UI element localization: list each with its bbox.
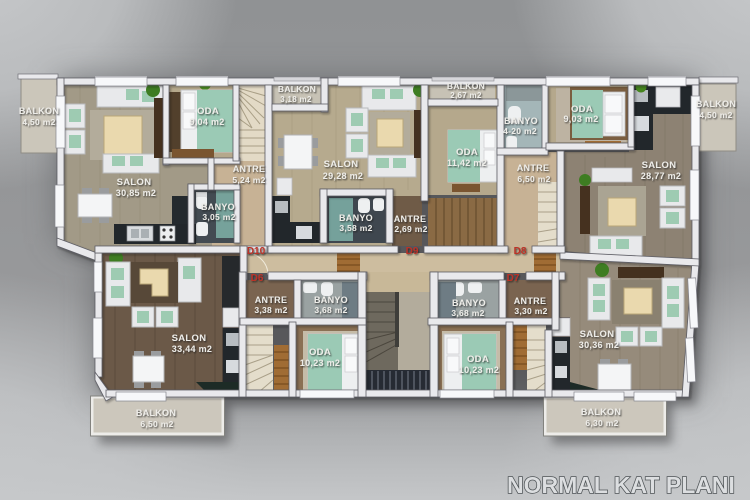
svg-text:ODA: ODA: [309, 347, 331, 358]
svg-text:9,04 m2: 9,04 m2: [189, 117, 224, 127]
svg-text:ANTRE: ANTRE: [255, 295, 288, 305]
svg-text:29,28 m2: 29,28 m2: [323, 171, 363, 181]
svg-text:4-20 m2: 4-20 m2: [503, 126, 537, 136]
svg-text:D6: D6: [251, 273, 264, 284]
svg-text:BANYO: BANYO: [314, 295, 348, 305]
svg-text:6,50 m2: 6,50 m2: [140, 419, 173, 429]
svg-text:D7: D7: [507, 273, 520, 284]
svg-text:ANTRE: ANTRE: [514, 296, 547, 306]
svg-text:3,68 m2: 3,68 m2: [314, 305, 347, 315]
svg-text:33,44 m2: 33,44 m2: [172, 344, 212, 354]
svg-text:5,24 m2: 5,24 m2: [232, 175, 265, 185]
svg-text:BANYO: BANYO: [452, 298, 486, 308]
svg-text:BALKON: BALKON: [136, 408, 176, 418]
svg-text:28,77 m2: 28,77 m2: [641, 171, 681, 181]
svg-text:30,36 m2: 30,36 m2: [579, 340, 619, 350]
svg-text:30,85 m2: 30,85 m2: [116, 188, 156, 198]
svg-text:2,67 m2: 2,67 m2: [450, 91, 482, 100]
svg-text:SALON: SALON: [324, 159, 359, 170]
svg-text:ODA: ODA: [456, 147, 478, 158]
svg-text:3,30 m2: 3,30 m2: [514, 306, 547, 316]
svg-text:3,05 m2: 3,05 m2: [202, 212, 235, 222]
svg-text:ODA: ODA: [197, 106, 219, 117]
svg-text:BALKON: BALKON: [278, 84, 316, 94]
svg-text:6,50 m2: 6,50 m2: [517, 174, 550, 184]
svg-text:10,23 m2: 10,23 m2: [459, 365, 499, 375]
svg-text:4,50 m2: 4,50 m2: [699, 110, 732, 120]
svg-text:D8: D8: [514, 246, 527, 257]
svg-text:3,58 m2: 3,58 m2: [339, 223, 372, 233]
svg-text:3,68 m2: 3,68 m2: [451, 308, 484, 318]
svg-text:6,30 m2: 6,30 m2: [585, 418, 618, 428]
svg-text:SALON: SALON: [172, 333, 207, 344]
svg-text:2,69 m2: 2,69 m2: [394, 224, 427, 234]
svg-text:BALKON: BALKON: [581, 407, 621, 417]
svg-text:3,18 m2: 3,18 m2: [280, 95, 312, 104]
svg-text:SALON: SALON: [580, 329, 615, 340]
svg-text:BALKON: BALKON: [19, 106, 59, 116]
svg-text:ODA: ODA: [467, 354, 489, 365]
svg-text:BALKON: BALKON: [447, 81, 485, 91]
svg-text:ANTRE: ANTRE: [233, 164, 266, 174]
svg-text:4,50 m2: 4,50 m2: [22, 117, 55, 127]
svg-text:SALON: SALON: [642, 160, 677, 171]
svg-text:BANYO: BANYO: [504, 116, 538, 126]
svg-text:D9: D9: [406, 246, 419, 257]
svg-text:D10: D10: [247, 246, 266, 257]
svg-text:9,03 m2: 9,03 m2: [563, 114, 598, 124]
svg-text:BANYO: BANYO: [339, 213, 373, 223]
svg-text:SALON: SALON: [117, 177, 152, 188]
svg-text:NORMAL KAT PLANI: NORMAL KAT PLANI: [507, 472, 735, 498]
svg-text:10,23 m2: 10,23 m2: [300, 358, 340, 368]
svg-text:BALKON: BALKON: [696, 99, 736, 109]
svg-text:BANYO: BANYO: [201, 202, 235, 212]
svg-text:ANTRE: ANTRE: [517, 163, 550, 173]
svg-text:11,42 m2: 11,42 m2: [447, 158, 487, 168]
svg-text:3,38 m2: 3,38 m2: [254, 305, 287, 315]
svg-text:ANTRE: ANTRE: [394, 214, 427, 224]
